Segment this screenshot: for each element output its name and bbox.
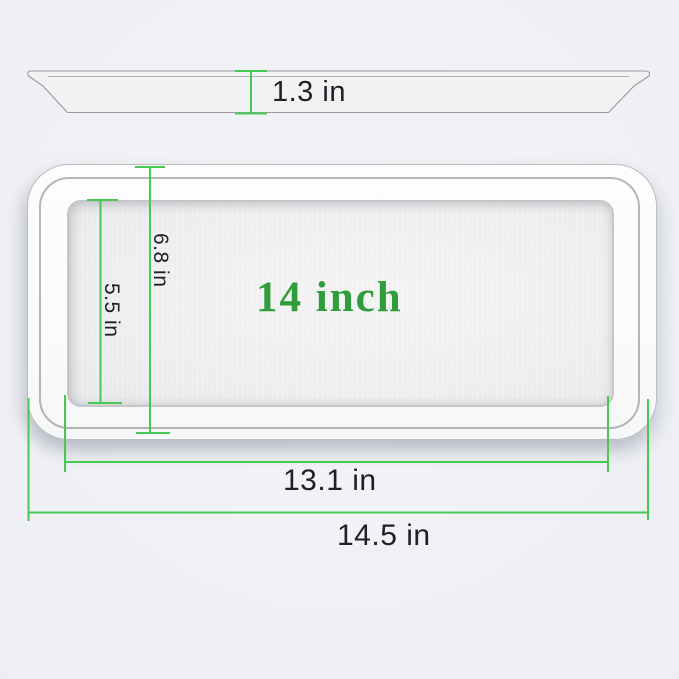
dim-label-inner-height: 5.5 in bbox=[100, 283, 123, 337]
product-dimension-diagram: 1.3 in 6.8 in 5.5 in 14 inch 13.1 in 14.… bbox=[0, 0, 679, 679]
dim-label-inner-width: 13.1 in bbox=[283, 464, 377, 497]
dim-label-thickness: 1.3 in bbox=[272, 77, 346, 109]
dim-outer-width-lines bbox=[29, 398, 650, 521]
dim-outer-height-lines bbox=[135, 167, 170, 433]
dim-label-outer-height: 6.8 in bbox=[149, 233, 172, 287]
tray-size-label: 14 inch bbox=[256, 274, 403, 321]
dim-label-outer-width: 14.5 in bbox=[337, 519, 431, 552]
